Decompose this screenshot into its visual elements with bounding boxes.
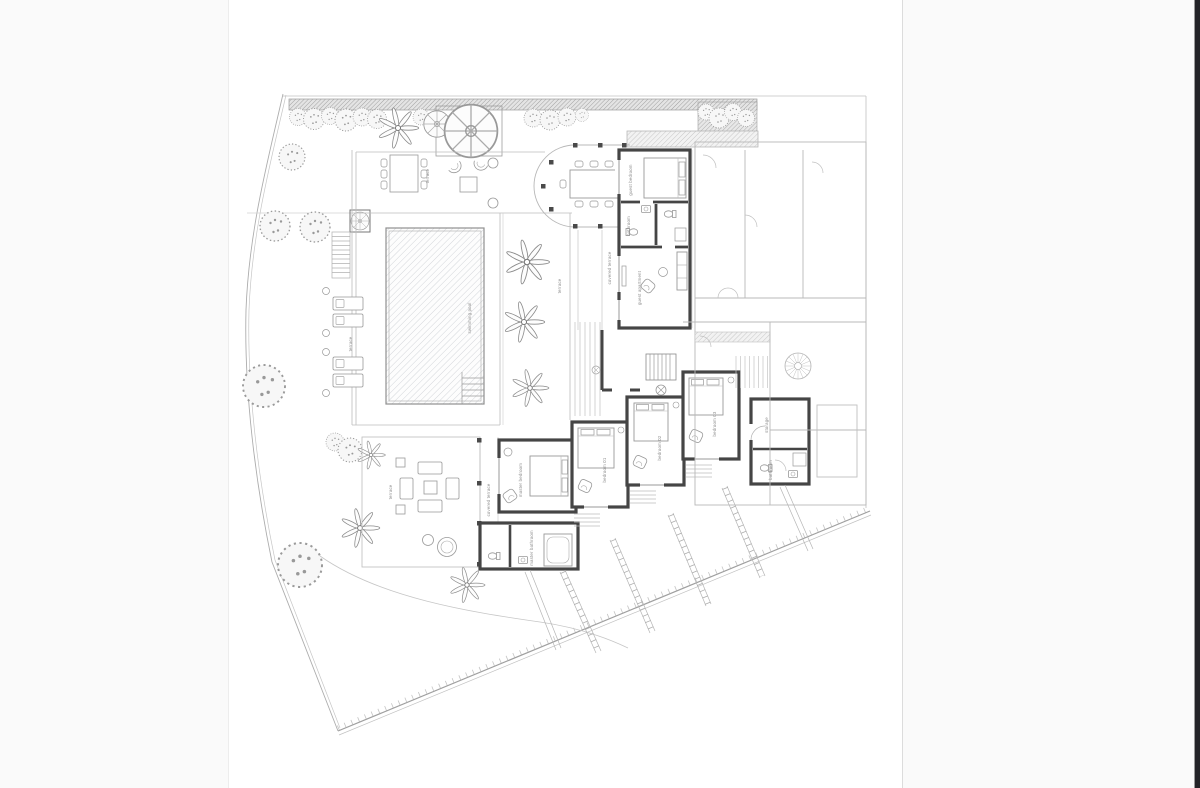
guest-wing <box>615 150 690 328</box>
label-storage: storage <box>764 417 769 433</box>
label-master-bathroom: master bathroom <box>529 530 534 566</box>
bedroom-01 <box>572 422 628 511</box>
label-terrace-upper: terrace <box>425 168 430 183</box>
label-bedroom-02: bedroom 02 <box>657 435 662 460</box>
label-master-bedroom: master bedroom <box>518 463 523 497</box>
floor-plan-drawing: swimming pool terrace terrace terrace te… <box>0 0 1200 788</box>
label-pool-deck: terrace <box>348 336 353 351</box>
viewer-background: swimming pool terrace terrace terrace te… <box>0 0 1200 788</box>
bedroom-02 <box>627 397 684 489</box>
label-bathroom: bathroom <box>768 460 773 480</box>
pool-area <box>323 213 601 425</box>
garden-stair <box>332 232 350 278</box>
window-edge-strip <box>1194 0 1200 788</box>
label-guest-apartment: guest apartment <box>637 270 642 305</box>
label-terrace-palm: terrace <box>557 278 562 293</box>
label-covered-terrace-upper: covered terrace <box>607 251 612 284</box>
lounge-terrace <box>362 437 498 570</box>
storage-bathroom-block <box>748 399 809 484</box>
entry-stair-hall <box>602 330 676 394</box>
label-bedroom-03: bedroom 03 <box>712 411 717 436</box>
label-guest-bedroom: guest bedroom <box>628 164 633 195</box>
label-swimming-pool: swimming pool <box>467 302 472 333</box>
neighbor-stair <box>736 356 768 388</box>
bedroom-03 <box>683 372 739 463</box>
label-guest-bathroom: bathroom <box>626 216 631 236</box>
label-bedroom-01: bedroom 01 <box>602 457 607 482</box>
label-terrace-lounge: terrace <box>388 484 393 499</box>
label-covered-terrace-lower: covered terrace <box>486 483 491 516</box>
